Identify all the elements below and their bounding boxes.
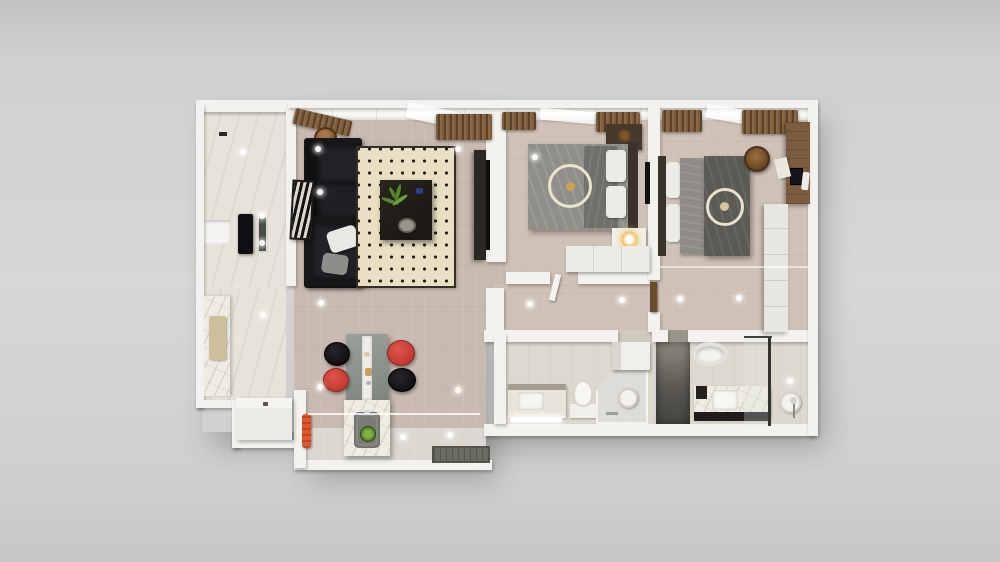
wall [486,288,504,332]
bedroom2-headboard [658,156,666,256]
shower-head [790,397,797,404]
wall [288,100,818,108]
ceiling-light [317,189,323,195]
ceiling-light [677,296,683,302]
wall [578,272,650,284]
bathroom1-vanity-edge [508,384,566,390]
cutting-board [209,316,226,360]
toilet-bowl [573,380,593,407]
bedroom1-headboard [628,142,638,232]
ceiling-light [455,387,461,393]
cabinet-handle [263,402,268,406]
corridor-floor [494,284,652,332]
dining-chair-red [323,368,349,392]
ceiling-light [318,300,324,306]
vanity-accessory [696,386,707,399]
wall [196,100,294,112]
bathroom1-doorway-floor [618,330,652,342]
decor-item [416,188,423,194]
bathroom1-sink [518,392,544,410]
shower-glass-frame [768,336,771,426]
wall [648,312,660,332]
sofa-cushion [319,184,359,218]
table-item [364,352,370,357]
round-mirror [618,388,638,408]
ceiling-light [240,149,246,155]
apartment-floorplan-3d-render [0,0,1000,562]
bedroom2-round-chair [744,146,770,172]
shower-glass-top-bar [744,336,772,338]
shower-faucet [606,412,618,415]
bedroom2-wardrobe [764,204,788,332]
door-handle [219,132,227,136]
ceiling-light [260,312,266,318]
vanity-led-strip [510,417,562,422]
entry-hall-floor [204,112,286,288]
bed-pillow [606,150,626,182]
ceiling-light [527,301,533,307]
bed-pillow [666,204,680,242]
living-curtain-right [436,114,492,140]
bathtub [692,342,728,366]
ceiling-light [787,378,793,384]
entrance-doormat [432,446,490,463]
bedroom1-curtain-left [502,112,536,130]
duvet-gold-dot [566,182,575,191]
dining-chair-black [388,368,416,392]
orange-towel [302,414,311,448]
tv-screen [486,160,490,250]
zebra-wall-art [289,179,314,240]
bedroom1-tv [645,162,650,204]
shower-glass-pane [744,336,770,426]
wardrobe-bowl [618,129,631,142]
bathroom2-doorway-floor [668,330,688,342]
sofa-cushion [319,147,359,182]
bathroom2-sink [712,390,738,410]
ceiling-light [259,240,265,246]
bedroom2-curtain-left [662,110,702,132]
entry-wall-niche [204,220,230,244]
dining-chair-black [324,342,350,366]
wall [232,440,302,448]
ceiling-light [736,295,742,301]
ceiling-light [317,384,323,390]
glass-door-panel [257,216,268,253]
ceiling-light [532,154,538,160]
wall [196,104,204,408]
ceiling-light [619,297,625,303]
dining-chair-red [387,340,415,366]
bedroom2-desk [786,122,810,204]
tray [398,218,416,233]
wall [494,334,506,424]
floor-seam [308,413,480,415]
bed-pillow [606,186,626,218]
ceiling-light [400,434,406,440]
tall-black-cabinet [238,214,253,254]
ceiling-light [259,213,265,219]
bed-pillow [666,162,680,198]
bedroom1-dresser [566,246,650,272]
table-item [365,368,372,376]
bathroom-recess [656,342,690,426]
ceiling-light [315,146,321,152]
green-bowl [360,426,376,442]
duvet-gold-dot [720,202,729,211]
wall [506,272,550,284]
grey-pillow [321,252,350,275]
bedroom2-door-leaf [650,282,657,312]
tv-console [474,150,486,260]
floor-seam [660,266,808,268]
ceiling-light [447,432,453,438]
bedroom2-blanket [680,158,706,254]
wall [652,330,668,342]
washing-machine-door [612,342,621,370]
table-item [366,381,371,385]
ceiling-light [455,146,461,152]
